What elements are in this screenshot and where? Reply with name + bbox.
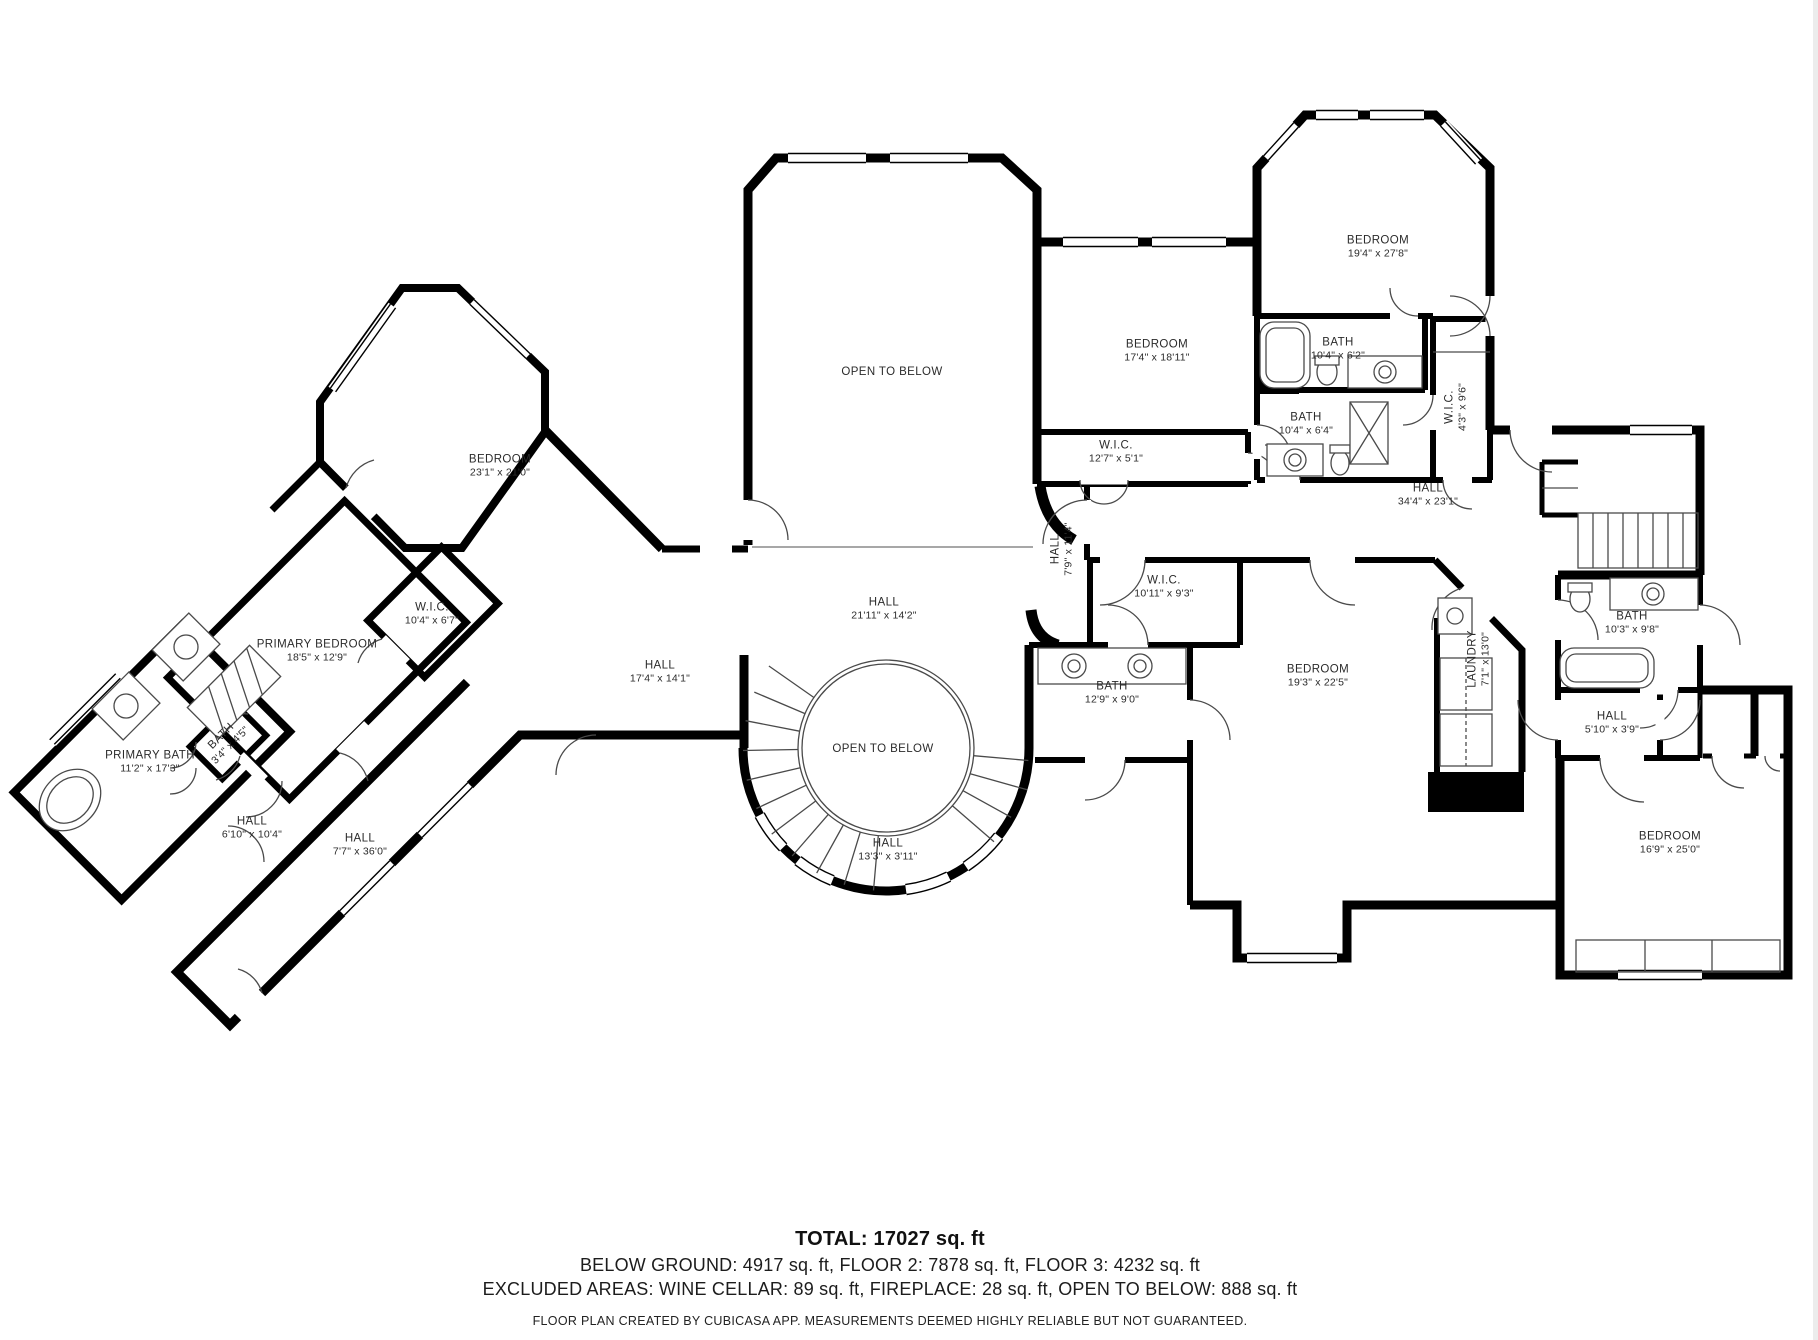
sink bbox=[114, 694, 138, 718]
exterior-walls bbox=[14, 115, 1788, 1025]
disclaimer: FLOOR PLAN CREATED BY CUBICASA APP. MEAS… bbox=[0, 1314, 1780, 1328]
fireplace-block bbox=[1428, 772, 1524, 812]
window-seat bbox=[1576, 940, 1780, 972]
total-area: TOTAL: 17027 sq. ft bbox=[0, 1228, 1780, 1251]
floor-areas: BELOW GROUND: 4917 sq. ft, FLOOR 2: 7878… bbox=[0, 1255, 1780, 1276]
excluded-areas: EXCLUDED AREAS: WINE CELLAR: 89 sq. ft, … bbox=[0, 1279, 1780, 1300]
area-summary: TOTAL: 17027 sq. ft BELOW GROUND: 4917 s… bbox=[0, 1228, 1780, 1328]
floor-plan-drawing bbox=[0, 0, 1818, 1340]
floor-plan-page: OPEN TO BELOWBEDROOM19'4" x 27'8"BEDROOM… bbox=[0, 0, 1818, 1340]
sink bbox=[174, 635, 198, 659]
page-edge-strip bbox=[1813, 0, 1818, 1340]
straight-staircase bbox=[1578, 513, 1698, 568]
sink-counter bbox=[1038, 648, 1186, 684]
toilet bbox=[1331, 451, 1349, 475]
